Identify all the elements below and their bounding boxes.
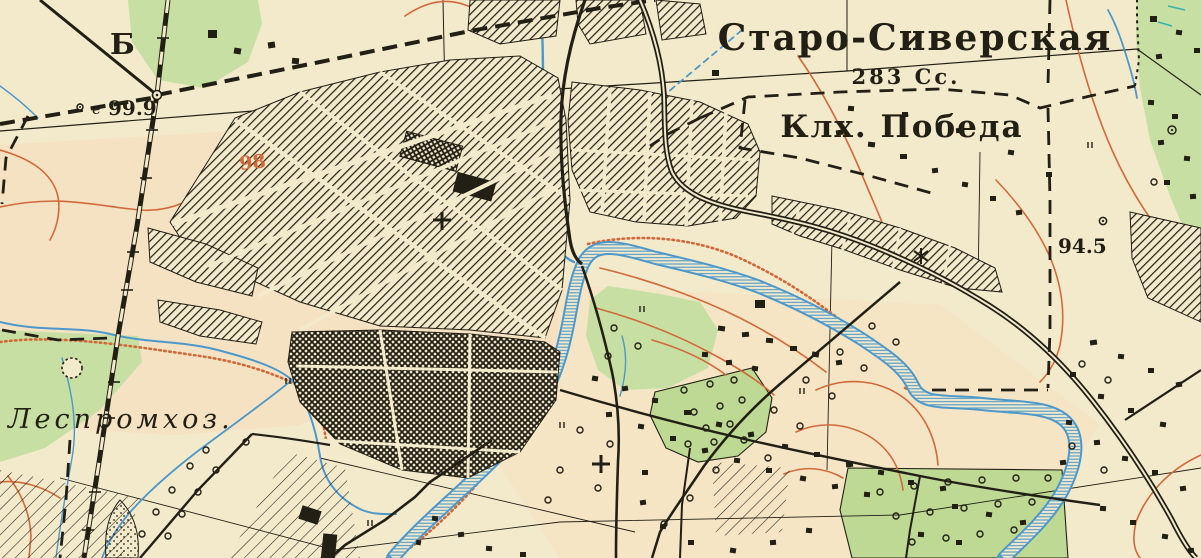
building-symbol <box>718 326 726 332</box>
building-symbol <box>1184 156 1190 162</box>
clearing-symbol <box>62 358 82 378</box>
field-hatch-south <box>712 462 790 536</box>
contour-value-label: 98 <box>238 150 267 175</box>
building-symbol <box>416 540 422 546</box>
spot-height-prefix: е <box>92 99 101 118</box>
building-symbol <box>755 300 765 308</box>
building-symbol <box>622 386 629 392</box>
building-symbol <box>1180 486 1187 492</box>
building-symbol <box>752 366 759 372</box>
building-symbol <box>1158 140 1164 146</box>
building-symbol <box>1060 460 1066 466</box>
building-symbol <box>292 58 299 65</box>
settlement-info-label: 283 Сс. <box>852 64 961 89</box>
building-symbol <box>734 458 740 464</box>
building-symbol <box>684 410 691 415</box>
building-symbol <box>940 486 947 492</box>
building-symbol <box>1118 354 1124 360</box>
building-symbol <box>1176 382 1183 388</box>
corner-letter-label: Б <box>110 27 135 61</box>
building-symbol <box>606 412 612 418</box>
building-symbol <box>814 452 820 457</box>
building-symbol <box>990 196 996 201</box>
building-symbol <box>1020 520 1026 526</box>
building-symbol <box>986 512 993 518</box>
building-symbol <box>1094 440 1100 446</box>
block-top-3 <box>656 0 706 40</box>
building-symbol <box>592 376 599 382</box>
building-symbol <box>432 516 439 522</box>
map-canvas: Старо-Сиверская 283 Сс. Клх. Победа Лесп… <box>0 0 1201 558</box>
building-symbol <box>800 476 807 482</box>
building-symbol <box>918 532 924 538</box>
building-symbol <box>846 462 853 468</box>
building-symbol <box>952 504 958 509</box>
culvert-symbol <box>712 70 719 76</box>
topographic-map: Старо-Сиверская 283 Сс. Клх. Победа Лесп… <box>0 0 1201 558</box>
building-symbol <box>458 532 464 538</box>
building-symbol <box>702 352 708 358</box>
building-symbol <box>1098 394 1104 400</box>
building-symbol <box>670 436 676 441</box>
building-symbol <box>1046 172 1052 177</box>
building-symbol <box>932 168 938 174</box>
building-symbol <box>688 540 694 545</box>
building-symbol <box>864 492 870 497</box>
building-symbol <box>642 470 648 475</box>
building-symbol <box>486 546 492 551</box>
building-symbol <box>1152 470 1158 475</box>
building-symbol <box>782 444 788 450</box>
spot-height-label-99: 99.9 <box>108 96 157 120</box>
building-symbol <box>790 346 797 351</box>
building-symbol <box>806 528 812 534</box>
building-symbol <box>702 448 709 454</box>
building-symbol <box>900 154 907 159</box>
building-symbol <box>321 533 338 558</box>
building-symbol <box>234 47 242 54</box>
building-symbol <box>766 468 772 473</box>
building-symbol <box>1100 506 1106 512</box>
building-symbol <box>1148 100 1154 106</box>
building-symbol <box>1128 408 1134 413</box>
building-symbol <box>742 332 749 338</box>
building-symbol <box>836 360 843 366</box>
building-symbol <box>1016 210 1023 216</box>
building-symbol <box>1008 150 1015 156</box>
building-symbol <box>1176 30 1183 36</box>
building-symbol <box>726 360 732 366</box>
building-symbol <box>652 398 658 404</box>
building-symbol <box>1188 548 1194 554</box>
building-symbol <box>1150 16 1157 22</box>
building-symbol <box>268 42 276 49</box>
building-symbol <box>1156 54 1163 60</box>
building-symbol <box>1172 114 1178 119</box>
building-symbol <box>640 500 647 506</box>
building-symbol <box>208 30 217 38</box>
settlement-name-label: Старо-Сиверская <box>718 17 1113 59</box>
building-symbol <box>956 540 962 545</box>
building-symbol <box>1066 420 1072 426</box>
building-symbol <box>1122 456 1128 462</box>
building-symbol <box>520 552 526 557</box>
building-symbol <box>1162 534 1169 540</box>
kolkhoz-name-label: Клх. Победа <box>780 109 1023 145</box>
building-symbol <box>770 540 776 546</box>
building-symbol <box>1090 340 1098 346</box>
building-symbol <box>1194 48 1200 53</box>
building-symbol <box>1070 372 1076 377</box>
lespromkhoz-label: Леспромхоз. <box>6 404 234 435</box>
spot-height-label-94: 94.5 <box>1058 234 1107 258</box>
building-symbol <box>748 432 755 438</box>
building-symbol <box>766 338 773 344</box>
building-symbol <box>1160 422 1167 428</box>
building-symbol <box>878 470 885 476</box>
building-symbol <box>1130 520 1136 525</box>
building-symbol <box>730 548 737 554</box>
building-symbol <box>832 484 838 490</box>
building-symbol <box>638 424 645 430</box>
building-symbol <box>1164 180 1170 185</box>
building-symbol <box>962 182 969 188</box>
building-symbol <box>1148 368 1154 373</box>
building-symbol <box>1190 194 1196 200</box>
